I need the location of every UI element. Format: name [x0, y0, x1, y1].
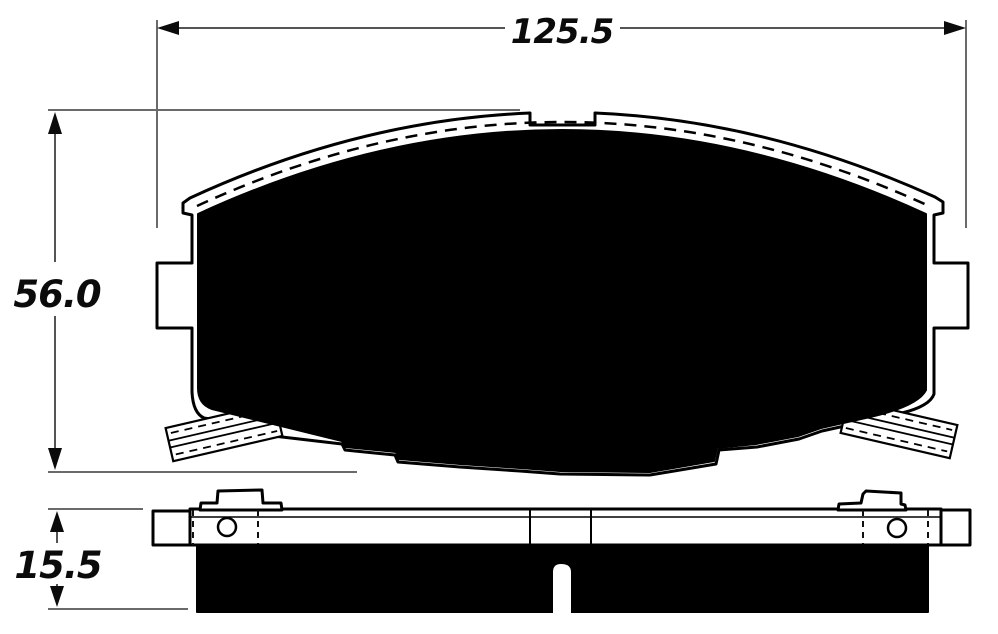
retaining-clip-right: [838, 491, 906, 510]
drawing-canvas: 125.5 56.0 15.5: [0, 0, 998, 634]
center-slot: [553, 564, 571, 613]
dimension-label-height: 56.0: [13, 273, 101, 316]
dimension-label-thickness: 15.5: [14, 544, 101, 587]
arrowhead-right: [944, 21, 966, 35]
arrowhead-up: [48, 112, 62, 134]
backing-plate-edge: [190, 509, 941, 545]
arrowhead-down: [50, 586, 64, 607]
friction-material: [198, 130, 926, 472]
side-view: [153, 490, 970, 613]
arrowhead-down: [48, 448, 62, 470]
rivet-hole-right: [888, 519, 906, 537]
arrowhead-up: [50, 511, 64, 532]
front-view: [157, 113, 968, 475]
right-end-block: [941, 510, 970, 545]
left-end-block: [153, 511, 190, 545]
rivet-hole-left: [218, 518, 236, 536]
arrowhead-left: [157, 21, 179, 35]
brake-pad-technical-drawing: 125.5 56.0 15.5: [0, 0, 998, 634]
retaining-clip-left: [200, 490, 282, 510]
dimension-label-width: 125.5: [511, 12, 614, 52]
